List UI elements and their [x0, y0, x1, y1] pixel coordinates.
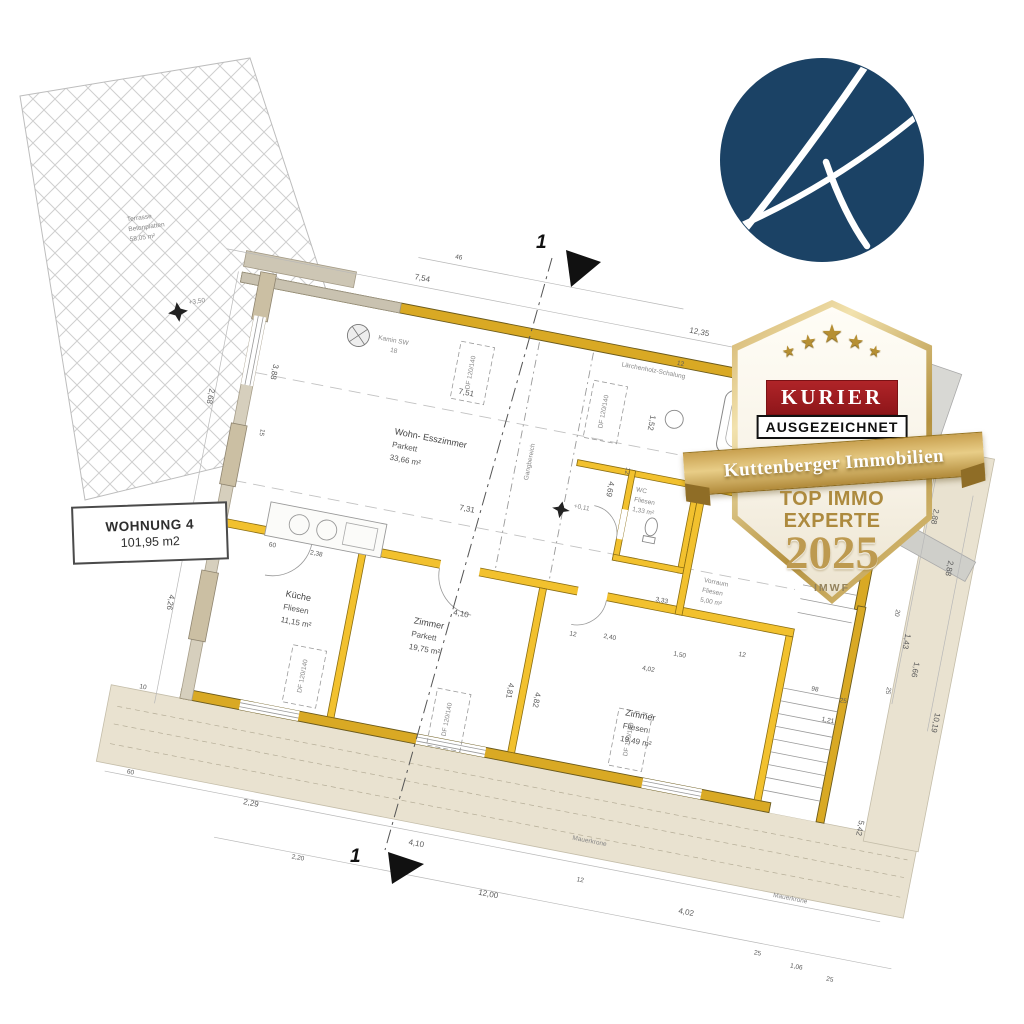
dimension-label: 1,43 [901, 633, 913, 651]
dimension-label: 4,26 [165, 594, 177, 612]
section-marker-top [566, 250, 601, 287]
badge-source: IMWF [710, 582, 954, 594]
dimension-label: 46 [455, 254, 464, 262]
badge-stars: ★ ★ ★ ★ ★ [710, 336, 954, 361]
unit-area: 101,95 m2 [121, 533, 181, 549]
star-icon: ★ [781, 343, 798, 361]
company-name: Kuttenberger Immobilien [723, 445, 945, 482]
dimension-label: 2,29 [243, 797, 261, 809]
dimension-label: 20 [893, 609, 901, 618]
star-icon: ★ [799, 332, 818, 353]
unit-name: WOHNUNG 4 [105, 516, 194, 534]
section-number-top: 1 [536, 232, 547, 253]
logo-circle [720, 58, 924, 262]
floor-plan-page: Terrasse Betonplatten 58,05 m² +3,50 Mau… [0, 0, 1024, 1024]
award-badge: ★ ★ ★ ★ ★ KURIER AUSGEZEICHNET Kuttenber… [710, 300, 954, 604]
dimension-label: 4,10 [408, 837, 426, 849]
dimension-label: 4,02 [678, 906, 696, 918]
kurier-logo: KURIER [766, 380, 898, 415]
dimension-label: 7,54 [414, 272, 432, 284]
dimension-label: 1,06 [789, 962, 803, 971]
unit-label-box: WOHNUNG 4 101,95 m2 [71, 501, 229, 564]
badge-title-line1: TOP IMMO [710, 488, 954, 511]
kuttenberger-k-logo [712, 52, 932, 272]
dimension-label: 60 [126, 768, 135, 776]
section-marker-bottom [388, 852, 424, 884]
dimension-label: 25 [884, 686, 892, 695]
badge-year: 2025 [710, 526, 954, 580]
ausgezeichnet-label: AUSGEZEICHNET [757, 415, 908, 439]
dimension-label: 10 [139, 683, 148, 691]
section-number-bottom: 1 [350, 846, 361, 867]
dimension-label: 12,35 [689, 326, 711, 339]
star-icon: ★ [867, 343, 884, 361]
dimension-label: 5,42 [854, 820, 866, 838]
dimension-label: 2,20 [291, 853, 305, 862]
dimension-label: 12 [576, 876, 585, 884]
star-icon: ★ [821, 322, 843, 347]
dimension-label: 12,00 [478, 888, 500, 901]
dimension-label: 25 [826, 976, 835, 984]
star-icon: ★ [846, 332, 865, 353]
dimension-label: 25 [753, 949, 762, 957]
